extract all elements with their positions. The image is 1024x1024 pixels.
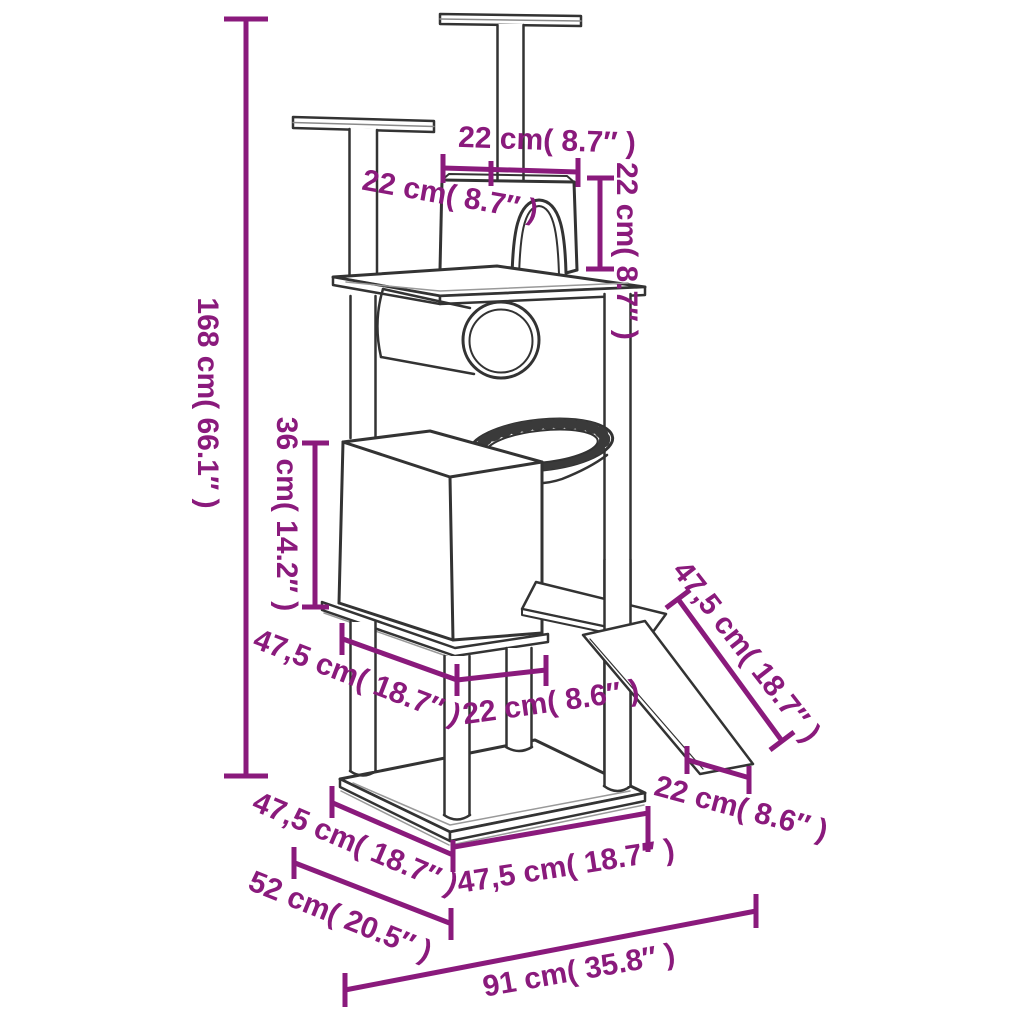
dim-label-house-height: 22 cm( 8.7″ ) [611, 162, 641, 340]
base-platform [340, 740, 645, 845]
dim-line-total-height [224, 19, 268, 776]
dim-label-top-house-width: 22 cm( 8.7″ ) [458, 123, 637, 159]
top-pole [497, 24, 524, 181]
dim-line-condo-height [302, 443, 329, 607]
left-pole-upper [349, 128, 378, 278]
left-pole-middle [350, 296, 376, 438]
dim-label-condo-height: 36 cm( 14.2″ ) [271, 417, 301, 611]
dim-label-total-height: 168 cm( 66.1″ ) [192, 297, 222, 508]
dimension-diagram: 168 cm( 66.1″ ) 22 cm( 8.7″ ) 22 cm( 8.7… [0, 0, 1024, 1024]
condo-cube [339, 431, 542, 640]
